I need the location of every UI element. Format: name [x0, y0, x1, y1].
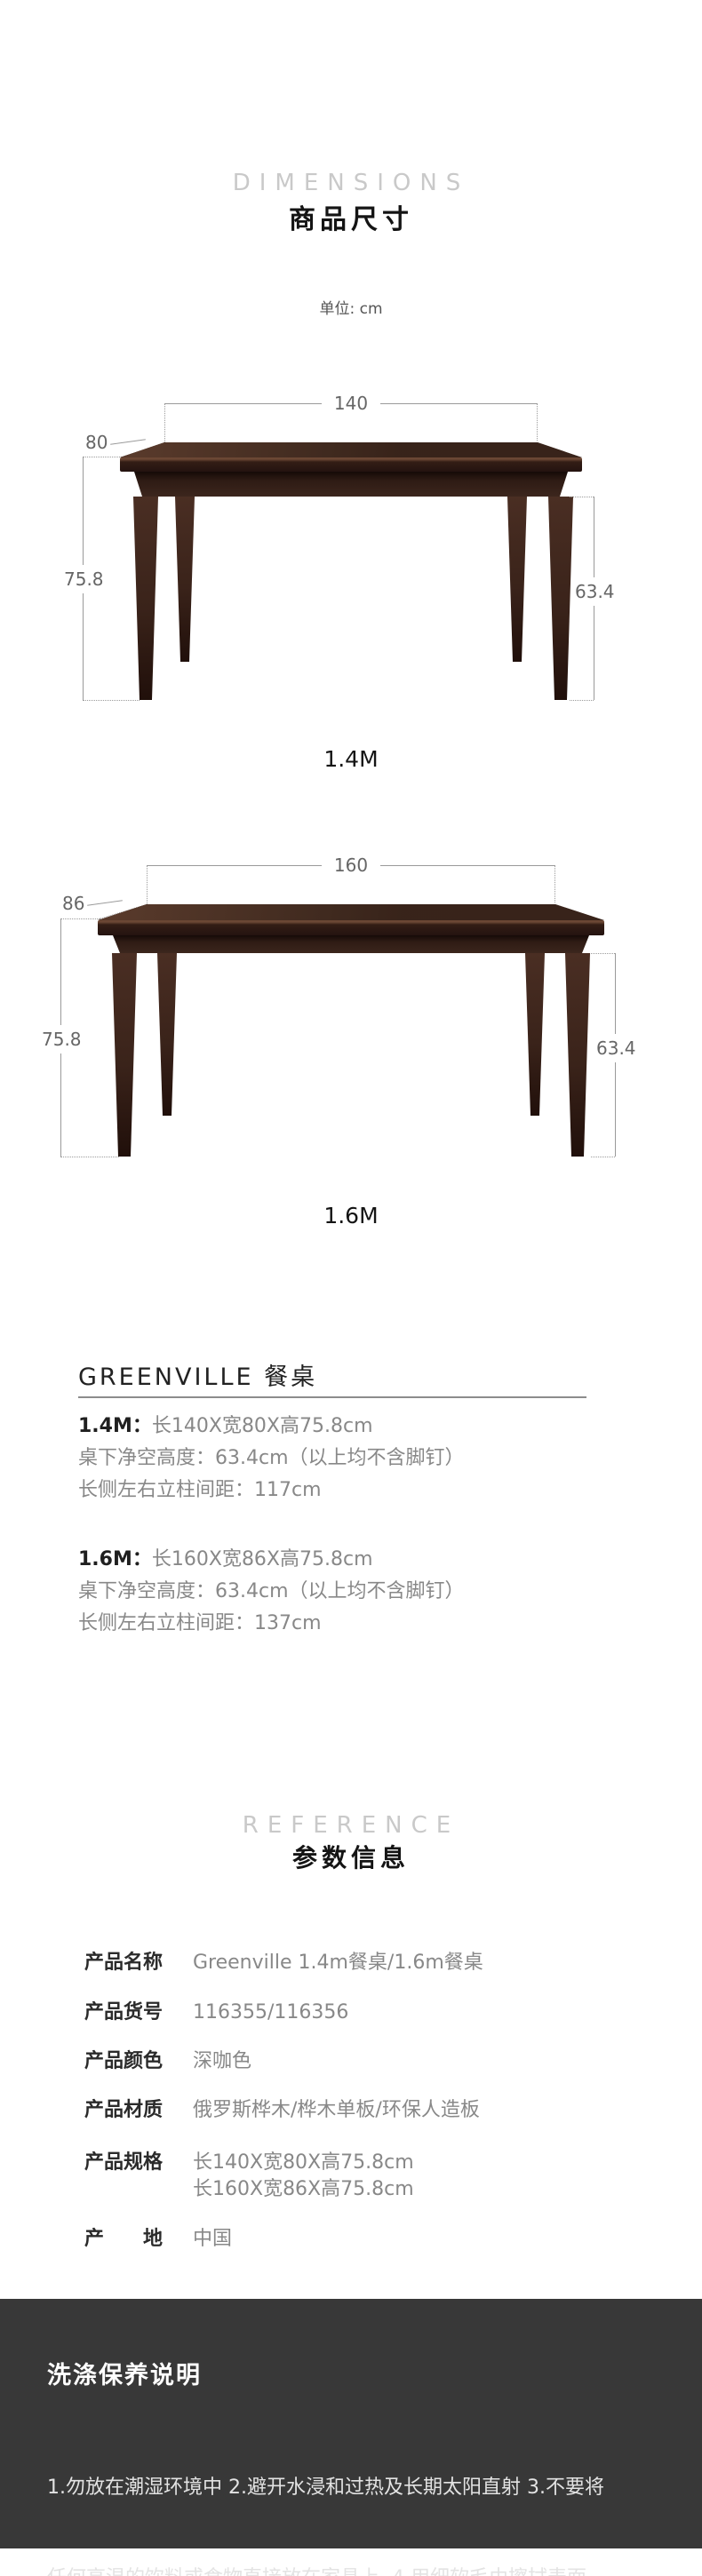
table-leg-back-right-2	[525, 953, 545, 1116]
ref-row-color: 产品颜色 深咖色	[84, 2048, 671, 2075]
dim-length-value-2: 160	[334, 855, 368, 876]
ref-row-origin: 产 地 中国	[84, 2226, 671, 2253]
table-leg-front-left-2	[112, 953, 137, 1157]
tabletop-surface-1	[120, 442, 582, 457]
dimensions-title: 商品尺寸	[0, 197, 702, 236]
ref-size-line-2: 长160X宽86X高75.8cm	[193, 2178, 414, 2200]
table-leg-back-right-1	[507, 497, 527, 662]
spec-dims: 长160X宽86X高75.8cm	[152, 1548, 373, 1570]
spec-line: 1.4M：长140X宽80X高75.8cm	[78, 1411, 647, 1443]
care-line-2: 任何高温的饮料或食物直接放在家具上 4.用细软毛巾擦拭表面,	[47, 2564, 669, 2576]
table-leg-back-left-2	[157, 953, 177, 1116]
dim-drop-left-2	[147, 866, 148, 904]
diagram-caption-1: 1.4M	[0, 746, 702, 772]
dim-floor-tick-left-1	[83, 700, 140, 701]
unit-note: 单位: cm	[0, 296, 702, 318]
ref-value: 深咖色	[193, 2048, 251, 2075]
spec-line: 长侧左右立柱间距：137cm	[78, 1608, 647, 1640]
dim-drop-left-1	[164, 404, 165, 442]
ref-row-sku: 产品货号 116355/116356	[84, 2000, 671, 2026]
table-apron-1	[134, 472, 568, 497]
dim-length-value-1: 140	[334, 393, 368, 414]
ref-label: 产品规格	[84, 2150, 176, 2176]
dim-drop-right-2	[554, 866, 555, 902]
reference-title: 参数信息	[0, 1839, 702, 1874]
ref-value: 长140X宽80X高75.8cm长160X宽86X高75.8cm	[193, 2150, 414, 2203]
ref-label: 产品货号	[84, 2000, 176, 2026]
care-section: 洗涤保养说明 1.勿放在潮湿环境中 2.避开水浸和过热及长期太阳直射 3.不要将…	[0, 2299, 702, 2548]
dim-clearance-tick-bottom-1	[570, 700, 594, 701]
care-line-1: 1.勿放在潮湿环境中 2.避开水浸和过热及长期太阳直射 3.不要将	[47, 2473, 669, 2503]
dim-clearance-tick-top-2	[591, 953, 615, 954]
ref-label: 产品材质	[84, 2097, 176, 2124]
table-leg-front-right-2	[565, 953, 590, 1157]
dim-drop-right-1	[537, 404, 538, 441]
tabletop-surface-2	[98, 904, 604, 920]
spec-size-label: 1.4M：	[78, 1415, 152, 1437]
heading-divider	[78, 1396, 586, 1398]
dim-depth-dotted-1	[83, 457, 122, 457]
table-leg-back-left-1	[175, 497, 195, 662]
dim-clearance-tick-bottom-2	[591, 1157, 615, 1157]
product-heading: GREENVILLE 餐桌	[78, 1357, 317, 1392]
ref-label: 产品名称	[84, 1950, 176, 1976]
dim-height-value-1: 75.8	[62, 565, 104, 593]
dim-clearance-value-1: 63.4	[573, 577, 616, 606]
table-leg-front-right-1	[548, 497, 573, 700]
ref-label: 产 地	[84, 2226, 176, 2253]
dimensions-eyebrow: DIMENSIONS	[0, 170, 702, 196]
ref-row-material: 产品材质 俄罗斯桦木/桦木单板/环保人造板	[84, 2097, 671, 2124]
ref-size-line-1: 长140X宽80X高75.8cm	[193, 2151, 414, 2174]
dim-height-value-2: 75.8	[40, 1025, 82, 1053]
ref-value: Greenville 1.4m餐桌/1.6m餐桌	[193, 1950, 483, 1976]
dim-depth-dotted-2	[60, 918, 100, 919]
dim-depth-value-1: 80	[85, 432, 108, 453]
dim-floor-tick-left-2	[60, 1157, 119, 1157]
dim-depth-value-2: 86	[62, 893, 84, 914]
product-detail-page: DIMENSIONS 商品尺寸 单位: cm 140 80 75.8 63.4 …	[0, 0, 702, 2576]
ref-value: 116355/116356	[193, 2000, 348, 2026]
spec-group-2: 1.6M：长160X宽86X高75.8cm 桌下净空高度：63.4cm（以上均不…	[78, 1544, 647, 1640]
table-apron-2	[113, 935, 589, 953]
reference-eyebrow: REFERENCE	[0, 1812, 702, 1839]
dim-length-line-2: 160	[147, 856, 555, 874]
spec-line: 桌下净空高度：63.4cm（以上均不含脚钉）	[78, 1443, 647, 1475]
tabletop-edge-1	[120, 457, 582, 472]
care-body: 1.勿放在潮湿环境中 2.避开水浸和过热及长期太阳直射 3.不要将 任何高温的饮…	[47, 2413, 669, 2576]
ref-row-size: 产品规格 长140X宽80X高75.8cm长160X宽86X高75.8cm	[84, 2150, 671, 2203]
spec-line: 桌下净空高度：63.4cm（以上均不含脚钉）	[78, 1576, 647, 1608]
spec-line: 长侧左右立柱间距：117cm	[78, 1475, 647, 1507]
ref-row-name: 产品名称 Greenville 1.4m餐桌/1.6m餐桌	[84, 1950, 671, 1976]
product-specs: 1.4M：长140X宽80X高75.8cm 桌下净空高度：63.4cm（以上均不…	[78, 1411, 647, 1640]
care-title: 洗涤保养说明	[47, 2356, 202, 2390]
ref-label: 产品颜色	[84, 2048, 176, 2075]
spec-size-label: 1.6M：	[78, 1548, 152, 1570]
dim-length-line-1: 140	[164, 394, 538, 412]
dim-clearance-value-2: 63.4	[594, 1034, 637, 1062]
spec-group-1: 1.4M：长140X宽80X高75.8cm 桌下净空高度：63.4cm（以上均不…	[78, 1411, 647, 1507]
spec-line: 1.6M：长160X宽86X高75.8cm	[78, 1544, 647, 1576]
tabletop-edge-2	[98, 920, 604, 935]
dim-depth-pointer-1	[110, 439, 146, 445]
ref-value: 中国	[193, 2226, 232, 2253]
ref-value: 俄罗斯桦木/桦木单板/环保人造板	[193, 2097, 480, 2124]
diagram-caption-2: 1.6M	[0, 1203, 702, 1228]
dim-clearance-tick-top-1	[570, 497, 594, 497]
dim-depth-pointer-2	[87, 900, 123, 906]
spec-dims: 长140X宽80X高75.8cm	[152, 1415, 373, 1437]
table-leg-front-left-1	[133, 497, 158, 700]
